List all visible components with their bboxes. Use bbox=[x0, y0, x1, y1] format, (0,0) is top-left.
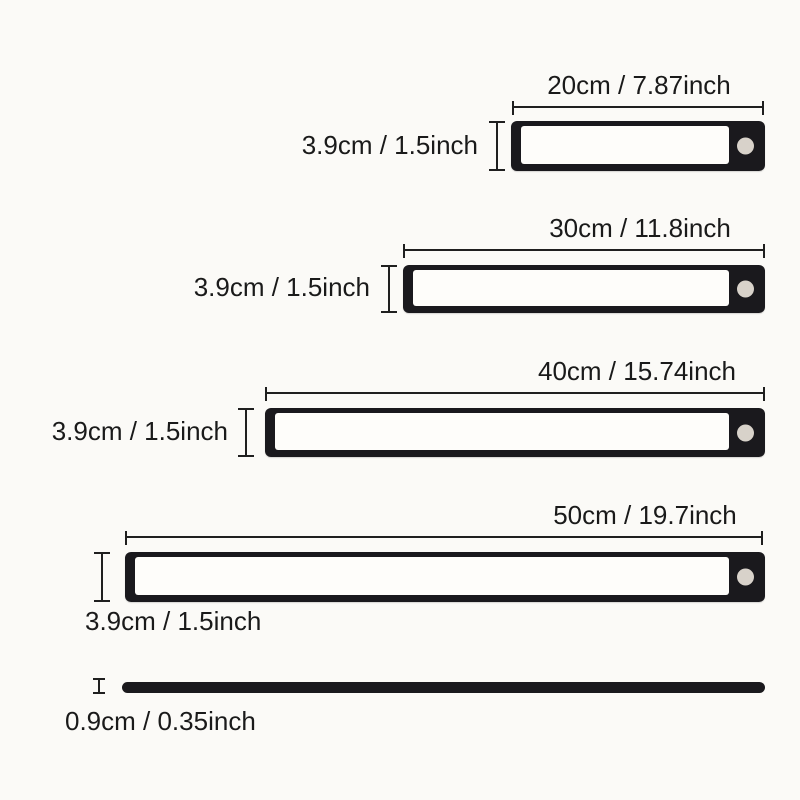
led-diffuser-panel bbox=[275, 413, 729, 450]
width-dimension-label: 20cm / 7.87inch bbox=[514, 70, 764, 100]
motion-sensor-icon bbox=[737, 569, 754, 586]
width-dimension-line bbox=[125, 536, 763, 538]
led-diffuser-panel bbox=[135, 557, 729, 595]
motion-sensor-icon bbox=[737, 138, 754, 155]
width-dimension-line bbox=[512, 106, 764, 108]
motion-sensor-icon bbox=[737, 281, 754, 298]
size-diagram: 20cm / 7.87inch 3.9cm / 1.5inch 30cm / 1… bbox=[0, 0, 800, 800]
light-bar-30cm bbox=[403, 265, 765, 313]
width-dimension-line bbox=[403, 249, 765, 251]
light-bar-side-view bbox=[122, 682, 765, 693]
width-dimension-label: 30cm / 11.8inch bbox=[515, 213, 765, 243]
height-dimension-label: 3.9cm / 1.5inch bbox=[28, 416, 228, 446]
height-dimension-bracket bbox=[94, 552, 110, 602]
height-dimension-bracket bbox=[381, 265, 397, 313]
height-dimension-bracket bbox=[238, 408, 254, 457]
width-dimension-line bbox=[265, 392, 765, 394]
thickness-dimension-bracket bbox=[93, 678, 105, 694]
width-dimension-label: 40cm / 15.74inch bbox=[512, 356, 762, 386]
light-bar-40cm bbox=[265, 408, 765, 457]
height-dimension-label: 3.9cm / 1.5inch bbox=[170, 272, 370, 302]
thickness-dimension-label: 0.9cm / 0.35inch bbox=[65, 706, 325, 736]
width-dimension-label: 50cm / 19.7inch bbox=[520, 500, 770, 530]
led-diffuser-panel bbox=[521, 126, 729, 164]
height-dimension-bracket bbox=[489, 121, 505, 171]
height-dimension-label: 3.9cm / 1.5inch bbox=[278, 130, 478, 160]
led-diffuser-panel bbox=[413, 270, 729, 306]
height-dimension-label: 3.9cm / 1.5inch bbox=[85, 606, 345, 636]
light-bar-50cm bbox=[125, 552, 765, 602]
light-bar-20cm bbox=[511, 121, 765, 171]
motion-sensor-icon bbox=[737, 424, 754, 441]
